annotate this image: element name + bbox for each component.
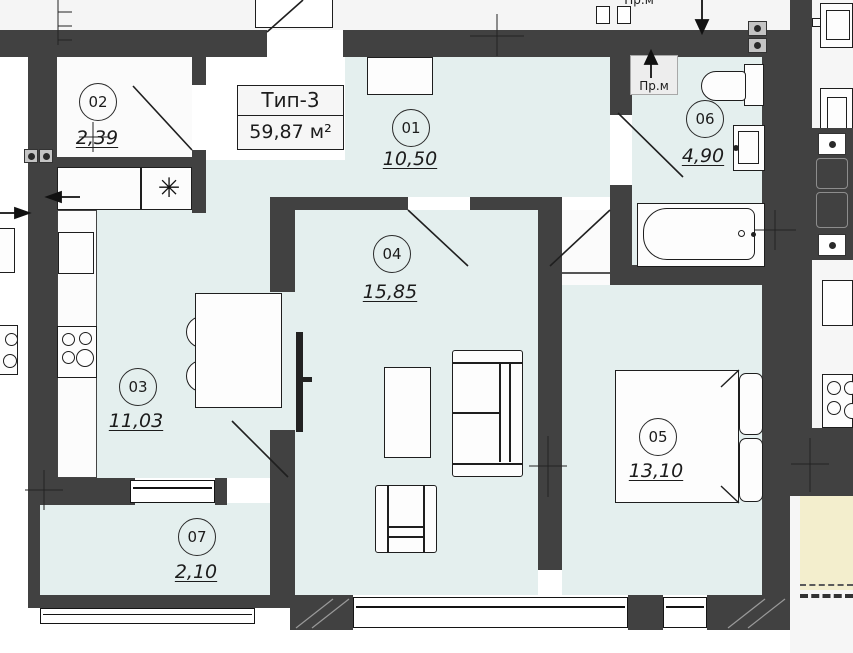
wall-segment [628,595,663,630]
dining-table [195,293,282,408]
vent-box [748,38,767,53]
neighbor-cabinet [0,228,15,273]
wall-segment [28,157,206,167]
burner [62,351,75,364]
stove [57,326,97,378]
room-area-04: 15,85 [350,281,430,303]
armchair-back-line [388,536,423,538]
neighbor-stove [822,374,853,428]
window [663,597,707,628]
title-block: Тип-3 59,87 м² [237,85,344,150]
room-number-05: 05 [639,418,677,456]
corridor-partial-label: Пр.м [614,0,664,7]
neighbor-cabinet [822,280,853,326]
room-area-06: 4,90 [668,145,738,167]
burner [827,381,841,395]
room-number-04: 04 [373,235,411,273]
vent-dot [28,153,35,160]
room-number-06: 06 [686,100,724,138]
armchair-arm-line [387,486,389,552]
window [353,597,628,628]
building-corridor [0,0,853,30]
vent-symbol: ✳ [146,170,192,208]
vent-dot [754,25,761,32]
neighbor-fixture-inner [827,97,847,129]
balcony-window [130,480,215,503]
armchair [375,485,437,553]
floor-plan: Пр.м Тип-3 59,87 м² 01 10,50 02 2,39 03 … [0,0,853,653]
room-area-02: 2,39 [67,127,127,149]
wall-segment [215,478,227,505]
room-area-07: 2,10 [161,561,231,583]
wall-segment [270,430,295,598]
wall-segment [610,185,632,285]
wall-segment [270,197,295,292]
sofa-seat-line [453,412,499,414]
vent-box [818,133,846,155]
burner [3,354,17,368]
neighbor-appliance-outline [816,158,848,189]
vent-dot [754,42,761,49]
room-area-01: 10,50 [372,148,448,170]
coffee-table [384,367,431,458]
wall-segment [610,57,632,115]
wall-segment [707,595,790,630]
vent-box [818,234,846,256]
apartment-area-label: 59,87 м² [238,116,343,149]
sofa-armrest-line [453,463,522,465]
wall-segment [790,428,853,496]
window-frame-line [43,614,252,615]
pillow [739,373,763,435]
window-frame-line [356,606,625,608]
wall-segment [192,57,206,85]
room-area-03: 11,03 [101,410,171,432]
tv-panel [296,332,303,432]
room-area-05: 13,10 [616,460,696,482]
wall-segment [28,30,57,478]
room-number-03: 03 [119,368,157,406]
room-number-02: 02 [79,83,117,121]
wall-segment [28,505,40,595]
wall-segment [290,595,353,630]
room-number-01: 01 [392,109,430,147]
apartment-type-label: Тип-3 [238,86,343,116]
niche-shelf-line [562,272,610,274]
sink-basin [738,131,759,164]
balcony-glazing [40,608,255,624]
room-number-07: 07 [178,518,216,556]
neighbor-balcony-dashed-line [800,584,853,586]
wall-segment [538,197,562,570]
neighbor-balcony-dashed-wall [800,594,853,598]
wall-segment [28,478,135,505]
vent-dot [829,141,836,148]
wall-segment [632,265,762,285]
armchair-back-line [388,526,423,528]
vent-box [39,149,53,163]
pillow [739,438,763,502]
corridor-tab [596,6,610,24]
burner [827,401,841,415]
burner [5,333,18,346]
wall-segment [343,30,612,57]
burner [844,403,853,419]
counter-divider [140,168,142,209]
toilet-tank [744,64,764,106]
hallway-cabinet [367,57,433,95]
neighbor-balcony [800,496,853,590]
burner [76,349,94,367]
neighbor-sink-basin [826,10,850,40]
bathtub [637,203,765,267]
window-frame-line [666,606,704,608]
burner [62,333,75,346]
vent-box [24,149,38,163]
tv-stand [303,377,312,382]
neighbor-stove [0,325,18,375]
sofa-back-line [509,364,511,462]
sofa-armrest-line [453,362,522,364]
right-arrow-head [15,208,29,218]
bed-mattress [615,370,739,503]
burner [79,332,92,345]
lobby-box [255,0,333,28]
window-frame-line [133,487,212,489]
neighbor-sink [820,3,853,48]
vent-box [748,21,767,36]
sofa [452,350,523,477]
wall-segment [470,197,548,210]
bedroom-niche [562,210,610,285]
vent-dot [829,242,836,249]
corridor-tab [617,6,631,24]
burner [844,381,853,395]
washing-machine-label: Пр.м [631,79,677,93]
toilet-bowl [701,71,746,101]
wall-segment [28,595,290,608]
sofa-back-line [499,364,501,462]
bathtub-drain [738,230,745,237]
neighbor-appliance-outline [816,192,848,228]
neighbor-faucet [812,18,821,27]
vent-dot [43,153,50,160]
bathtub-faucet [751,232,756,237]
wall-segment [762,30,790,598]
washing-machine-spot: Пр.м [630,55,678,95]
armchair-arm-line [423,486,425,552]
kitchen-cabinet [58,232,94,274]
